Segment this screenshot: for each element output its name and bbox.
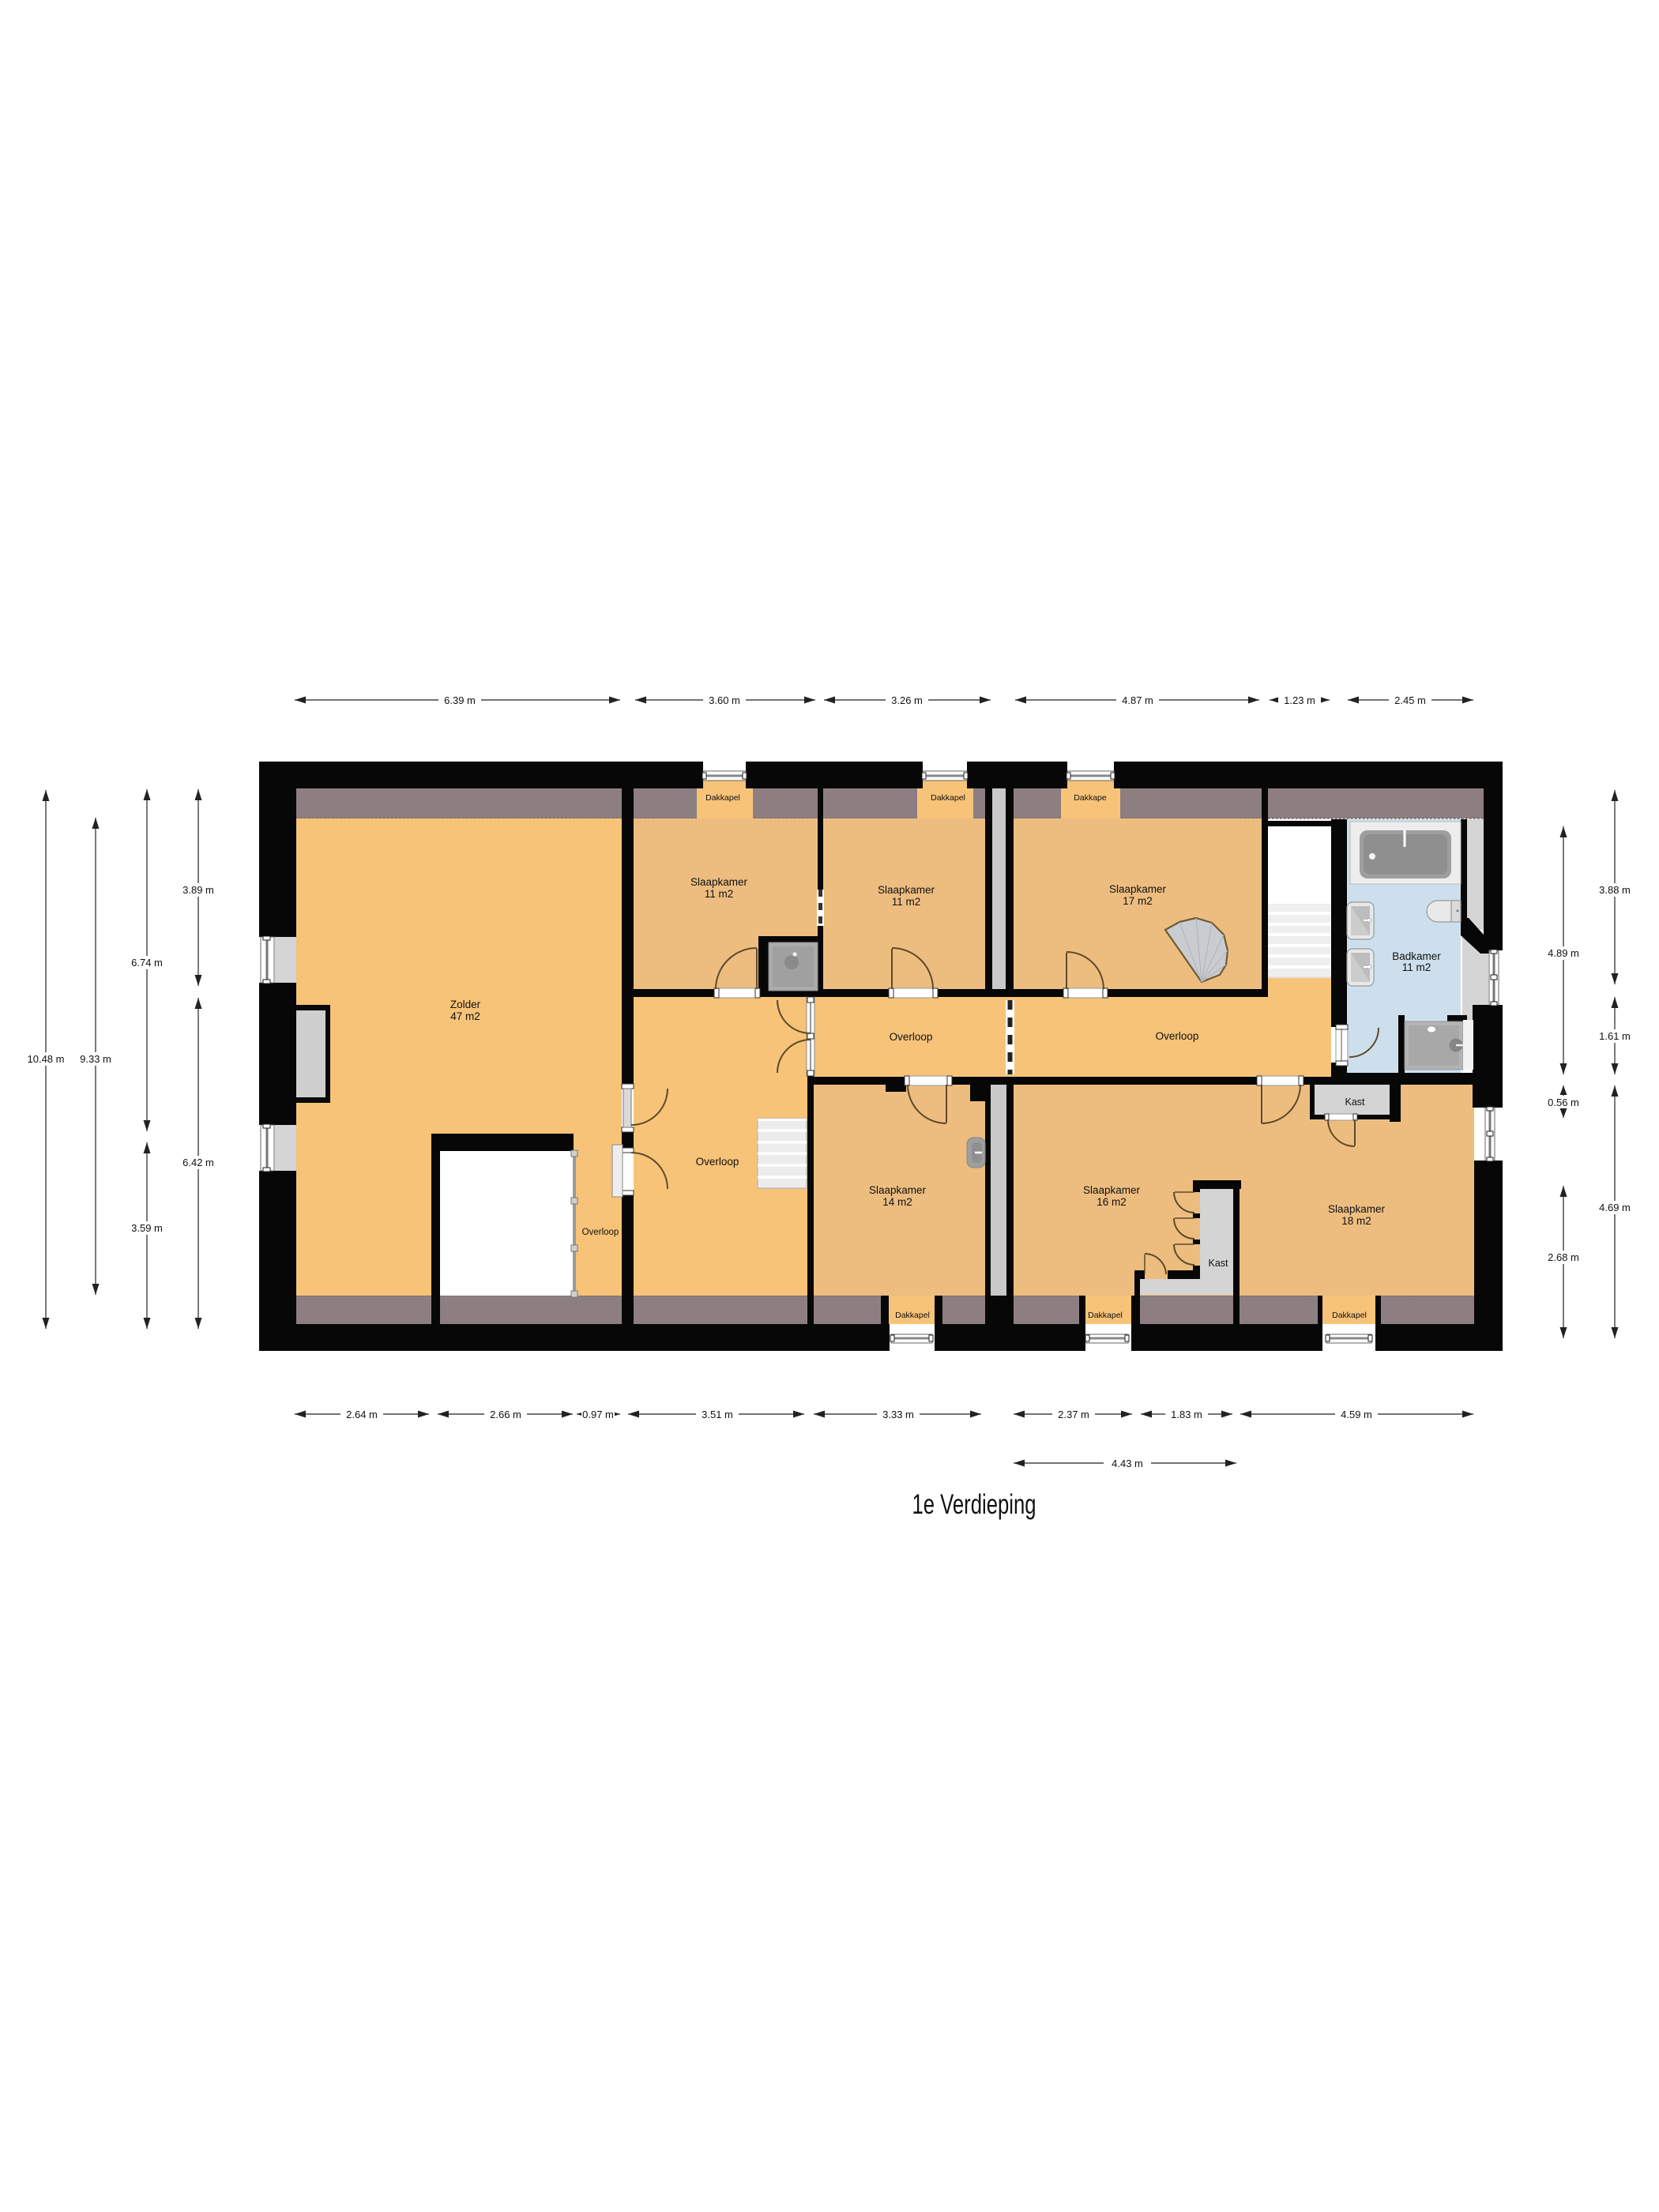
svg-text:3.26 m: 3.26 m [891, 694, 923, 706]
svg-text:17 m2: 17 m2 [1123, 895, 1153, 907]
svg-text:Dakkapel: Dakkapel [931, 793, 965, 803]
svg-text:1e Verdieping: 1e Verdieping [912, 1489, 1036, 1520]
svg-text:1.61 m: 1.61 m [1599, 1030, 1631, 1042]
svg-text:1.23 m: 1.23 m [1284, 694, 1315, 706]
svg-text:2.66 m: 2.66 m [490, 1409, 521, 1420]
svg-text:Dakkapel: Dakkapel [1332, 1311, 1367, 1320]
svg-text:6.74 m: 6.74 m [131, 957, 163, 969]
svg-text:Kast: Kast [1208, 1258, 1228, 1269]
svg-text:Slaapkamer: Slaapkamer [869, 1184, 927, 1196]
svg-text:Overloop: Overloop [890, 1031, 933, 1043]
svg-text:1.83 m: 1.83 m [1171, 1409, 1202, 1420]
svg-text:0.56 m: 0.56 m [1548, 1097, 1579, 1108]
svg-text:Zolder: Zolder [450, 999, 481, 1010]
svg-text:Dakkapel: Dakkapel [1088, 1311, 1123, 1320]
svg-text:3.89 m: 3.89 m [182, 884, 214, 896]
svg-text:Overloop: Overloop [1156, 1030, 1199, 1042]
svg-text:4.59 m: 4.59 m [1341, 1409, 1372, 1420]
svg-text:4.69 m: 4.69 m [1599, 1202, 1631, 1213]
svg-text:14 m2: 14 m2 [882, 1196, 912, 1208]
svg-text:Dakkape: Dakkape [1074, 793, 1107, 803]
svg-text:16 m2: 16 m2 [1097, 1196, 1127, 1208]
svg-text:Slaapkamer: Slaapkamer [690, 876, 748, 888]
svg-text:Kast: Kast [1345, 1097, 1365, 1108]
svg-text:9.33 m: 9.33 m [80, 1053, 111, 1065]
svg-text:Dakkapel: Dakkapel [705, 793, 740, 803]
svg-text:Slaapkamer: Slaapkamer [1109, 883, 1167, 895]
svg-text:47 m2: 47 m2 [450, 1010, 480, 1022]
svg-text:4.87 m: 4.87 m [1122, 694, 1153, 706]
svg-text:2.64 m: 2.64 m [346, 1409, 378, 1420]
svg-text:Slaapkamer: Slaapkamer [1328, 1203, 1386, 1215]
svg-text:Overloop: Overloop [582, 1228, 619, 1237]
svg-text:18 m2: 18 m2 [1341, 1215, 1371, 1227]
svg-text:Slaapkamer: Slaapkamer [878, 884, 935, 896]
svg-text:Overloop: Overloop [696, 1156, 739, 1168]
svg-text:4.89 m: 4.89 m [1548, 947, 1579, 959]
svg-text:Slaapkamer: Slaapkamer [1083, 1184, 1141, 1196]
svg-text:0.97 m: 0.97 m [582, 1409, 614, 1420]
svg-text:3.60 m: 3.60 m [709, 694, 740, 706]
svg-text:Badkamer: Badkamer [1392, 950, 1441, 962]
svg-text:11 m2: 11 m2 [705, 888, 734, 900]
svg-text:6.42 m: 6.42 m [182, 1157, 214, 1168]
svg-text:10.48 m: 10.48 m [28, 1053, 65, 1065]
svg-text:3.59 m: 3.59 m [131, 1222, 163, 1234]
svg-text:6.39 m: 6.39 m [444, 694, 476, 706]
svg-text:2.37 m: 2.37 m [1058, 1409, 1089, 1420]
svg-text:3.88 m: 3.88 m [1599, 884, 1631, 896]
svg-text:11 m2: 11 m2 [892, 896, 921, 908]
svg-text:2.45 m: 2.45 m [1394, 694, 1426, 706]
svg-text:4.43 m: 4.43 m [1112, 1458, 1143, 1469]
svg-text:2.68 m: 2.68 m [1548, 1251, 1579, 1263]
svg-text:Dakkapel: Dakkapel [895, 1311, 930, 1320]
svg-text:3.33 m: 3.33 m [882, 1409, 914, 1420]
svg-text:3.51 m: 3.51 m [702, 1409, 733, 1420]
svg-text:11 m2: 11 m2 [1402, 961, 1431, 973]
